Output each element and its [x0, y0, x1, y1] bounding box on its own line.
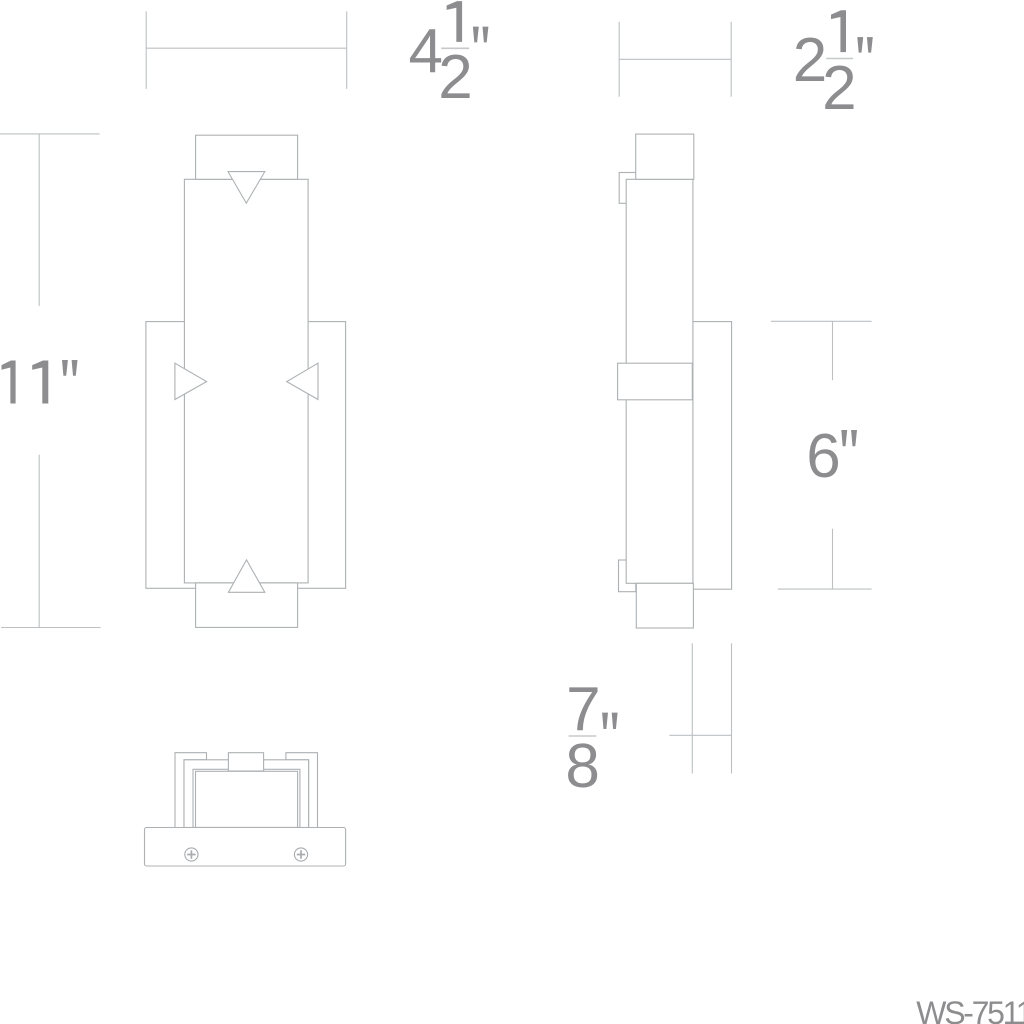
svg-text:8: 8: [565, 732, 599, 801]
svg-text:2: 2: [438, 43, 472, 112]
svg-text:2: 2: [822, 54, 856, 123]
svg-text:6: 6: [806, 422, 840, 491]
svg-text:WS-7511: WS-7511: [916, 995, 1024, 1024]
